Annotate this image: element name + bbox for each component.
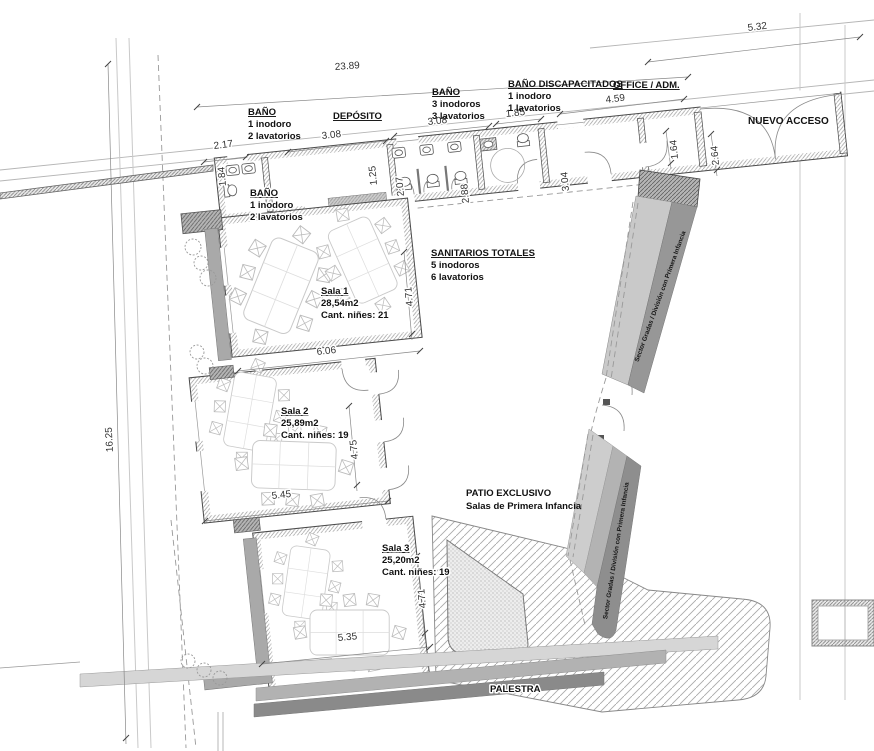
dim-bano-main-d1: 2.07	[394, 176, 407, 197]
label-palestra: PALESTRA	[490, 684, 541, 695]
dim-sala2-d: 4.75	[348, 439, 361, 460]
label-bano-main-title: BAÑO	[432, 87, 460, 98]
label-bano-top-title: BAÑO	[248, 107, 276, 118]
label-sala2-title: Sala 2	[281, 406, 308, 417]
dim-bano-top-w: 2.17	[213, 139, 234, 152]
dim-office-d: 3.04	[559, 171, 572, 192]
dim-sala2-w: 5.45	[271, 489, 292, 502]
label-sanitarios-line2: 6 lavatorios	[431, 272, 484, 283]
label-sala1-title: Sala 1	[321, 286, 349, 297]
label-bano-top-line1: 1 inodoro	[248, 119, 291, 130]
dim-vest-w: 1.64	[668, 139, 681, 160]
dim-site-left: 16.25	[104, 426, 116, 452]
label-sala1-capacity: Cant. niñes: 21	[321, 310, 389, 321]
dim-sala3-d: 4.71	[416, 588, 429, 609]
sector-gradas-band-upper: Sector Gradas / División con Primera Inf…	[591, 170, 700, 432]
dim-strip-d1: 1.25	[367, 165, 380, 186]
label-bano-disc-title: BAÑO DISCAPACITADOS	[508, 79, 623, 90]
dim-sala1-w: 6.06	[316, 345, 337, 358]
label-sala2-capacity: Cant. niñes: 19	[281, 430, 349, 441]
label-nuevo-acceso: NUEVO ACCESO	[748, 116, 829, 127]
label-deposito: DEPÓSITO	[333, 110, 382, 122]
label-bano-inner-line1: 1 inodoro	[250, 200, 293, 211]
small-structure	[812, 600, 874, 646]
label-bano-main-line2: 3 lavatorios	[432, 111, 485, 122]
dim-total-top: 23.89	[334, 60, 360, 73]
dim-access-d: 2.64	[709, 145, 722, 166]
floor-plan-drawing: Sector Gradas / División con Primera Inf…	[0, 0, 874, 751]
dim-access-front: 5.32	[747, 21, 768, 34]
label-sala3-capacity: Cant. niñes: 19	[382, 567, 450, 578]
floor-plan-page: Sector Gradas / División con Primera Inf…	[0, 0, 874, 751]
label-bano-main-line1: 3 inodoros	[432, 99, 481, 110]
label-office: OFFICE / ADM.	[613, 80, 680, 91]
label-bano-disc-line1: 1 inodoro	[508, 91, 551, 102]
dim-sala3-w: 5.35	[337, 631, 358, 644]
dim-bano-top-d: 1.84	[216, 166, 229, 187]
label-bano-disc-line2: 1 lavatorios	[508, 103, 561, 114]
dim-deposito-w: 3.08	[321, 129, 342, 142]
label-sanitarios-line1: 5 inodoros	[431, 260, 480, 271]
label-bano-inner-title: BAÑO	[250, 188, 278, 199]
label-sala2-area: 25,89m2	[281, 418, 319, 429]
label-patio-line1: PATIO EXCLUSIVO	[466, 488, 551, 499]
dim-office-w: 4.59	[605, 93, 626, 106]
label-bano-inner-line2: 2 lavatorios	[250, 212, 303, 223]
label-sala1-area: 28,54m2	[321, 298, 359, 309]
label-sanitarios-title: SANITARIOS TOTALES	[431, 248, 535, 259]
room-sala-1	[205, 189, 427, 369]
dim-bano-main-d2: 2.88	[459, 183, 472, 204]
label-sala3-area: 25,20m2	[382, 555, 420, 566]
dim-sala1-d: 4.71	[403, 286, 416, 307]
label-patio-line2: Salas de Primera Infancia	[466, 501, 582, 512]
label-sala3-title: Sala 3	[382, 543, 409, 554]
label-bano-top-line2: 2 lavatorios	[248, 131, 301, 142]
